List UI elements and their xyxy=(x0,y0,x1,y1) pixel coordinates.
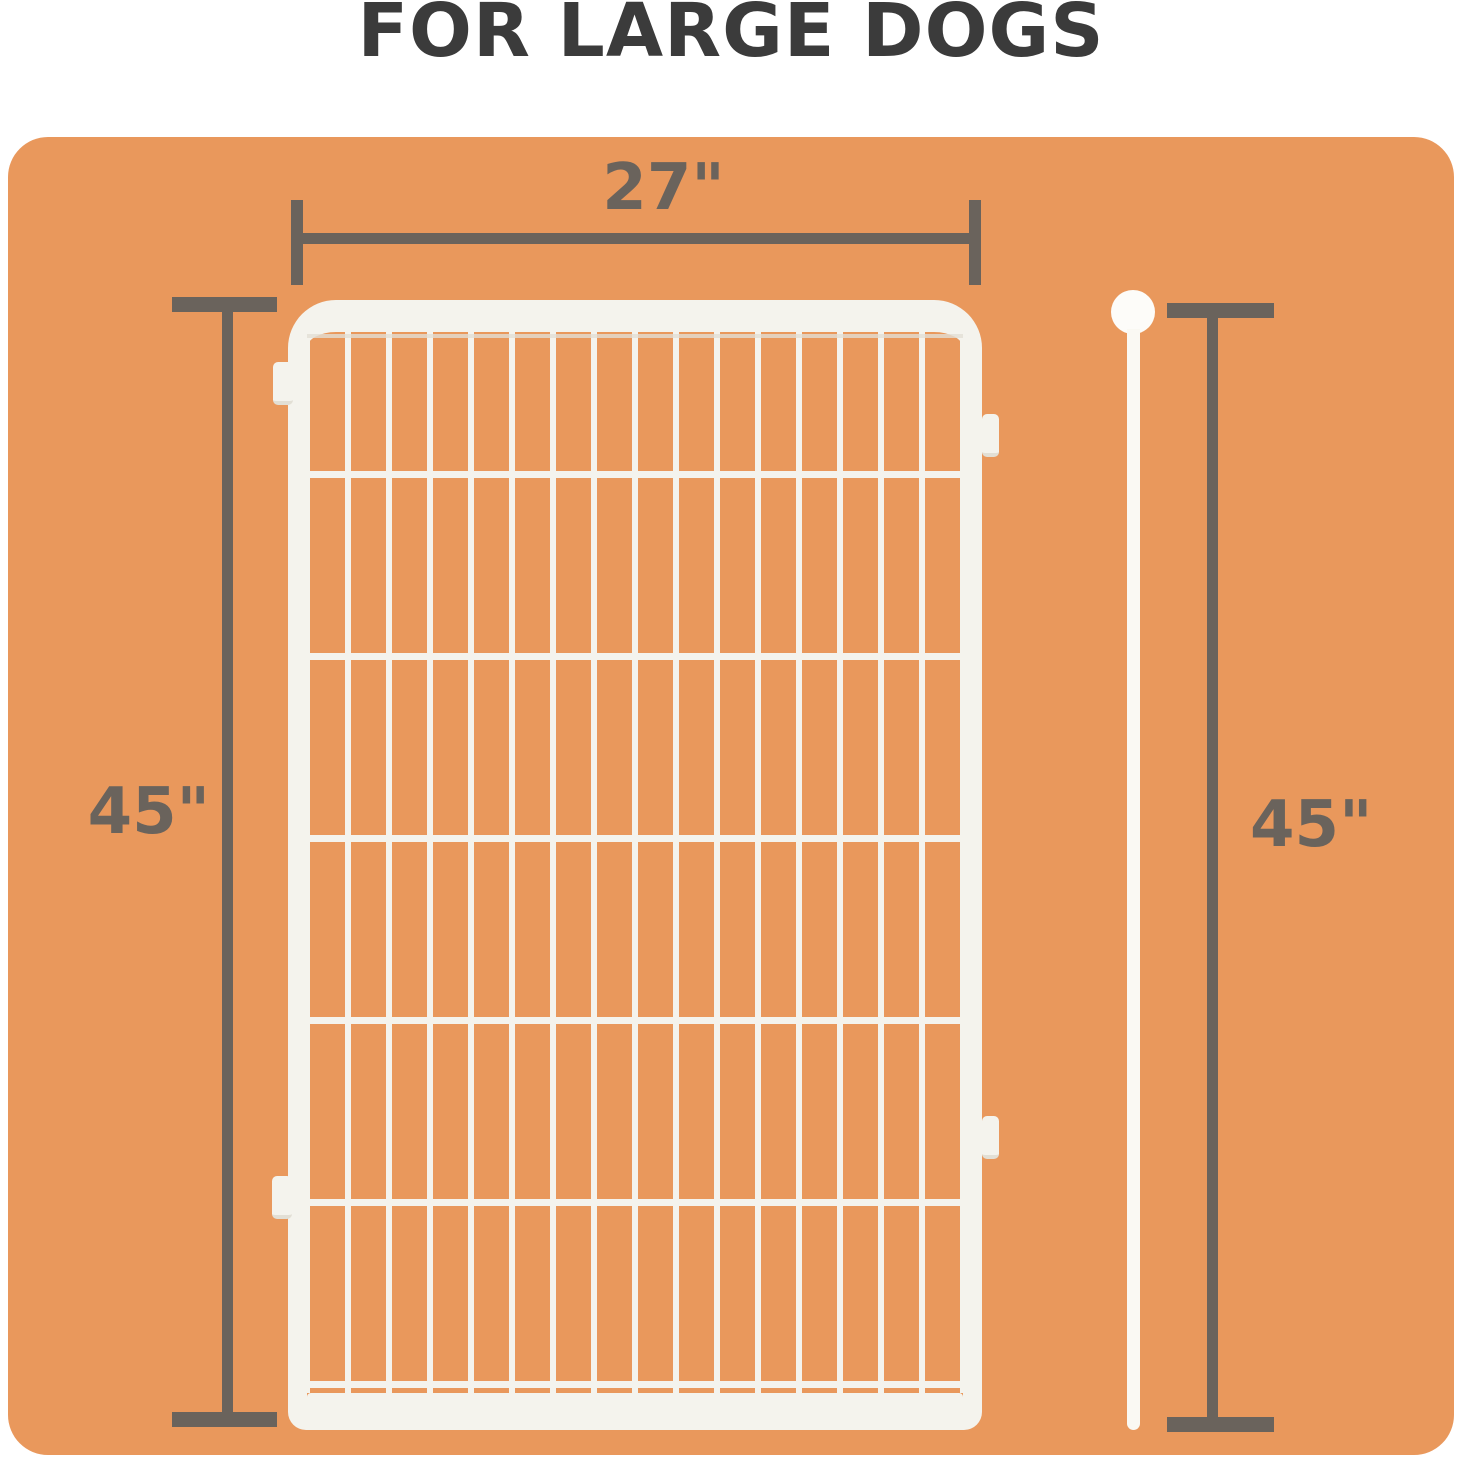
connector-tab-top-right xyxy=(982,414,999,457)
dimension-cap-right xyxy=(969,200,981,285)
connector-tab-bottom-left xyxy=(272,1176,292,1219)
stake-ball-icon xyxy=(1111,290,1155,334)
height-label-right: 45" xyxy=(1250,792,1450,858)
stake-rod xyxy=(1127,329,1140,1430)
height-label-left: 45" xyxy=(28,779,210,845)
connector-tab-bottom-right xyxy=(982,1116,999,1159)
dimension-cap-bottom xyxy=(1167,1417,1274,1432)
dimension-cap-top xyxy=(1167,303,1274,318)
size-board: 27" 45" 45" xyxy=(8,137,1454,1455)
dimension-cap-bottom xyxy=(172,1412,277,1427)
width-label: 27" xyxy=(536,155,791,221)
dimension-line-horizontal xyxy=(297,233,975,244)
dimension-line-vertical xyxy=(222,309,233,1413)
product-diagram-page: FOR LARGE DOGS 27" 45" 45" xyxy=(0,0,1462,1463)
wire-panel-graphic xyxy=(288,300,982,1430)
panel-bottom-rail xyxy=(307,1393,963,1427)
dimension-line-vertical xyxy=(1207,315,1218,1418)
connector-tab-top-left xyxy=(273,362,293,405)
page-title: FOR LARGE DOGS xyxy=(0,0,1462,74)
panel-wire-mesh xyxy=(307,332,963,1393)
